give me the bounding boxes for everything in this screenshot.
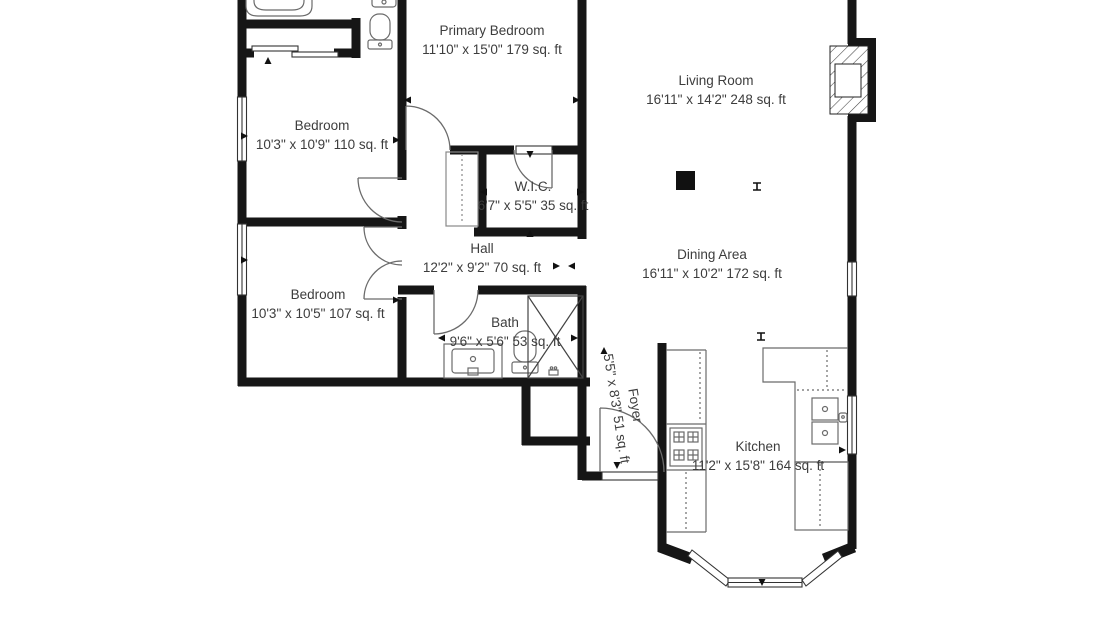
room-dims: 16'11" x 14'2" 248 sq. ft — [646, 90, 786, 109]
window-symbol — [848, 262, 857, 296]
door-swing-symbol — [406, 106, 450, 150]
column-marker — [676, 171, 695, 190]
room-label-wic: W.I.C. 6'7" x 5'5" 35 sq. ft — [478, 177, 589, 215]
room-name: Bedroom — [251, 285, 384, 304]
room-label-kitchen: Kitchen 11'2" x 15'8" 164 sq. ft — [692, 437, 824, 475]
bathtub-icon — [246, 0, 312, 16]
room-label-dining-area: Dining Area 16'11" x 10'2" 172 sq. ft — [642, 245, 782, 283]
toilet-icon — [368, 14, 392, 49]
bay-window — [688, 550, 842, 587]
room-name: Hall — [423, 239, 541, 258]
room-name: Kitchen — [692, 437, 824, 456]
door-swing-symbol — [358, 178, 402, 222]
room-name: Living Room — [646, 71, 786, 90]
room-name: Primary Bedroom — [422, 21, 562, 40]
room-name: Bath — [450, 313, 561, 332]
room-name: Bedroom — [256, 116, 388, 135]
window-symbol — [238, 97, 247, 161]
room-dims: 11'2" x 15'8" 164 sq. ft — [692, 456, 824, 475]
sink-icon — [372, 0, 396, 7]
room-label-bath: Bath 9'6" x 5'6" 53 sq. ft — [450, 313, 561, 351]
room-dims: 10'3" x 10'5" 107 sq. ft — [251, 304, 384, 323]
room-label-bedroom-2: Bedroom 10'3" x 10'5" 107 sq. ft — [251, 285, 384, 323]
floor-plan-drawing — [0, 0, 1110, 623]
linen-closet — [446, 152, 478, 226]
room-dims: 6'7" x 5'5" 35 sq. ft — [478, 196, 589, 215]
room-dims: 16'11" x 10'2" 172 sq. ft — [642, 264, 782, 283]
floor-plan: Primary Bedroom 11'10" x 15'0" 179 sq. f… — [0, 0, 1110, 623]
door-swing-symbol — [364, 227, 402, 265]
room-dims: 10'3" x 10'9" 110 sq. ft — [256, 135, 388, 154]
room-dims: 11'10" x 15'0" 179 sq. ft — [422, 40, 562, 59]
room-name: Dining Area — [642, 245, 782, 264]
room-label-primary-bedroom: Primary Bedroom 11'10" x 15'0" 179 sq. f… — [422, 21, 562, 59]
room-dims: 12'2" x 9'2" 70 sq. ft — [423, 258, 541, 277]
room-name: W.I.C. — [478, 177, 589, 196]
fireplace-icon — [830, 42, 872, 118]
room-label-hall: Hall 12'2" x 9'2" 70 sq. ft — [423, 239, 541, 277]
sliding-closet-door — [252, 46, 338, 57]
room-label-bedroom-1: Bedroom 10'3" x 10'9" 110 sq. ft — [256, 116, 388, 154]
room-label-living-room: Living Room 16'11" x 14'2" 248 sq. ft — [646, 71, 786, 109]
window-symbol — [848, 396, 857, 454]
room-dims: 9'6" x 5'6" 53 sq. ft — [450, 332, 561, 351]
